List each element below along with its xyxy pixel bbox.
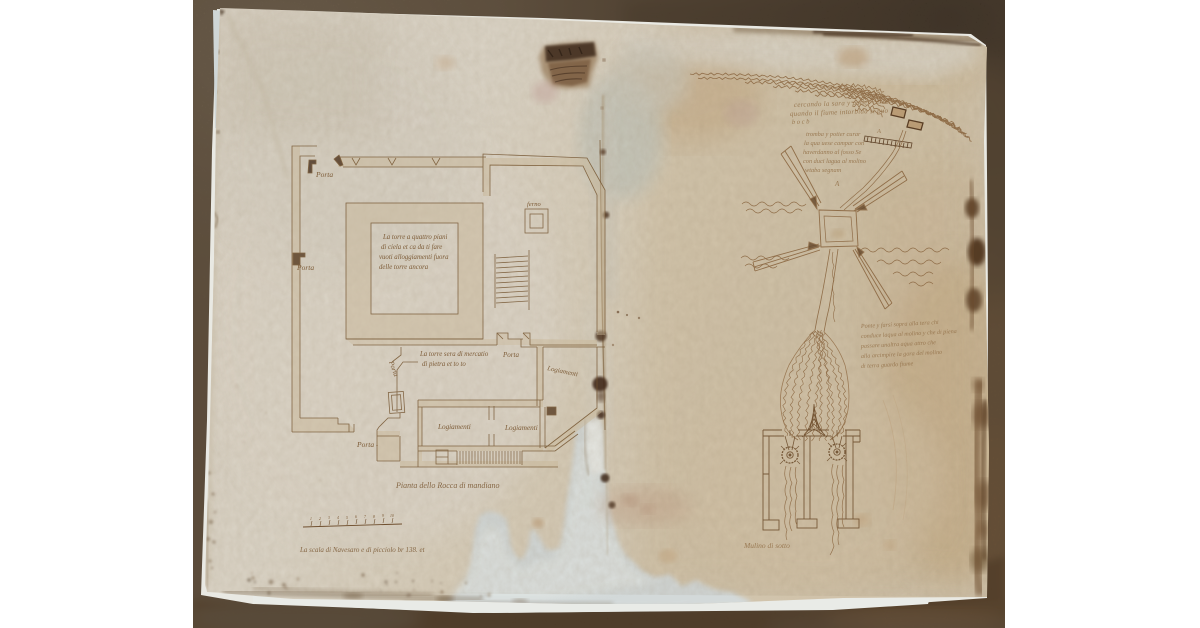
svg-text:La scala di Navesaro e di picc: La scala di Navesaro e di picciolo br 13…	[299, 546, 426, 554]
svg-text:Logiamenti: Logiamenti	[504, 424, 538, 432]
svg-text:delle torre ancora: delle torre ancora	[379, 264, 429, 271]
svg-text:A: A	[834, 180, 840, 188]
svg-text:Porta: Porta	[296, 263, 314, 272]
svg-text:di ciela et ca da ti fare: di ciela et ca da ti fare	[381, 244, 442, 251]
svg-text:1: 1	[310, 517, 312, 521]
svg-text:la qua uese campar con: la qua uese campar con	[804, 140, 864, 147]
svg-text:di pietra et to to: di pietra et to to	[422, 361, 466, 368]
svg-text:8: 8	[373, 515, 375, 519]
svg-text:vuoti alloggiamenti fuora: vuoti alloggiamenti fuora	[379, 254, 449, 261]
svg-text:Porta: Porta	[502, 351, 519, 359]
svg-text:5: 5	[346, 516, 348, 520]
svg-text:b o c b: b o c b	[792, 118, 810, 126]
svg-text:Porta: Porta	[315, 170, 333, 179]
svg-text:Porta -: Porta -	[356, 440, 378, 449]
svg-text:La torre a quattro piani: La torre a quattro piani	[382, 234, 448, 241]
svg-text:con duci lagua al molino: con duci lagua al molino	[803, 158, 866, 165]
svg-text:4: 4	[337, 516, 339, 520]
svg-text:3: 3	[328, 516, 330, 520]
svg-text:9: 9	[382, 514, 384, 518]
svg-text:2: 2	[319, 517, 321, 521]
svg-text:La torre sera di mercatio: La torre sera di mercatio	[419, 351, 489, 358]
svg-text:6: 6	[355, 515, 357, 519]
svg-text:tromba y potier curar: tromba y potier curar	[806, 131, 861, 138]
svg-text:A: A	[876, 128, 881, 135]
svg-text:Logiamenti: Logiamenti	[437, 423, 471, 431]
svg-text:wtaba segnam: wtaba segnam	[805, 167, 842, 174]
svg-text:10: 10	[390, 514, 394, 518]
svg-text:ferno: ferno	[527, 201, 541, 208]
svg-text:haverdanno al fosso Se: haverdanno al fosso Se	[803, 149, 862, 156]
svg-text:Pianta dello Rocca di mandiano: Pianta dello Rocca di mandiano	[395, 481, 500, 490]
svg-text:Mulino di sotto: Mulino di sotto	[743, 541, 790, 550]
